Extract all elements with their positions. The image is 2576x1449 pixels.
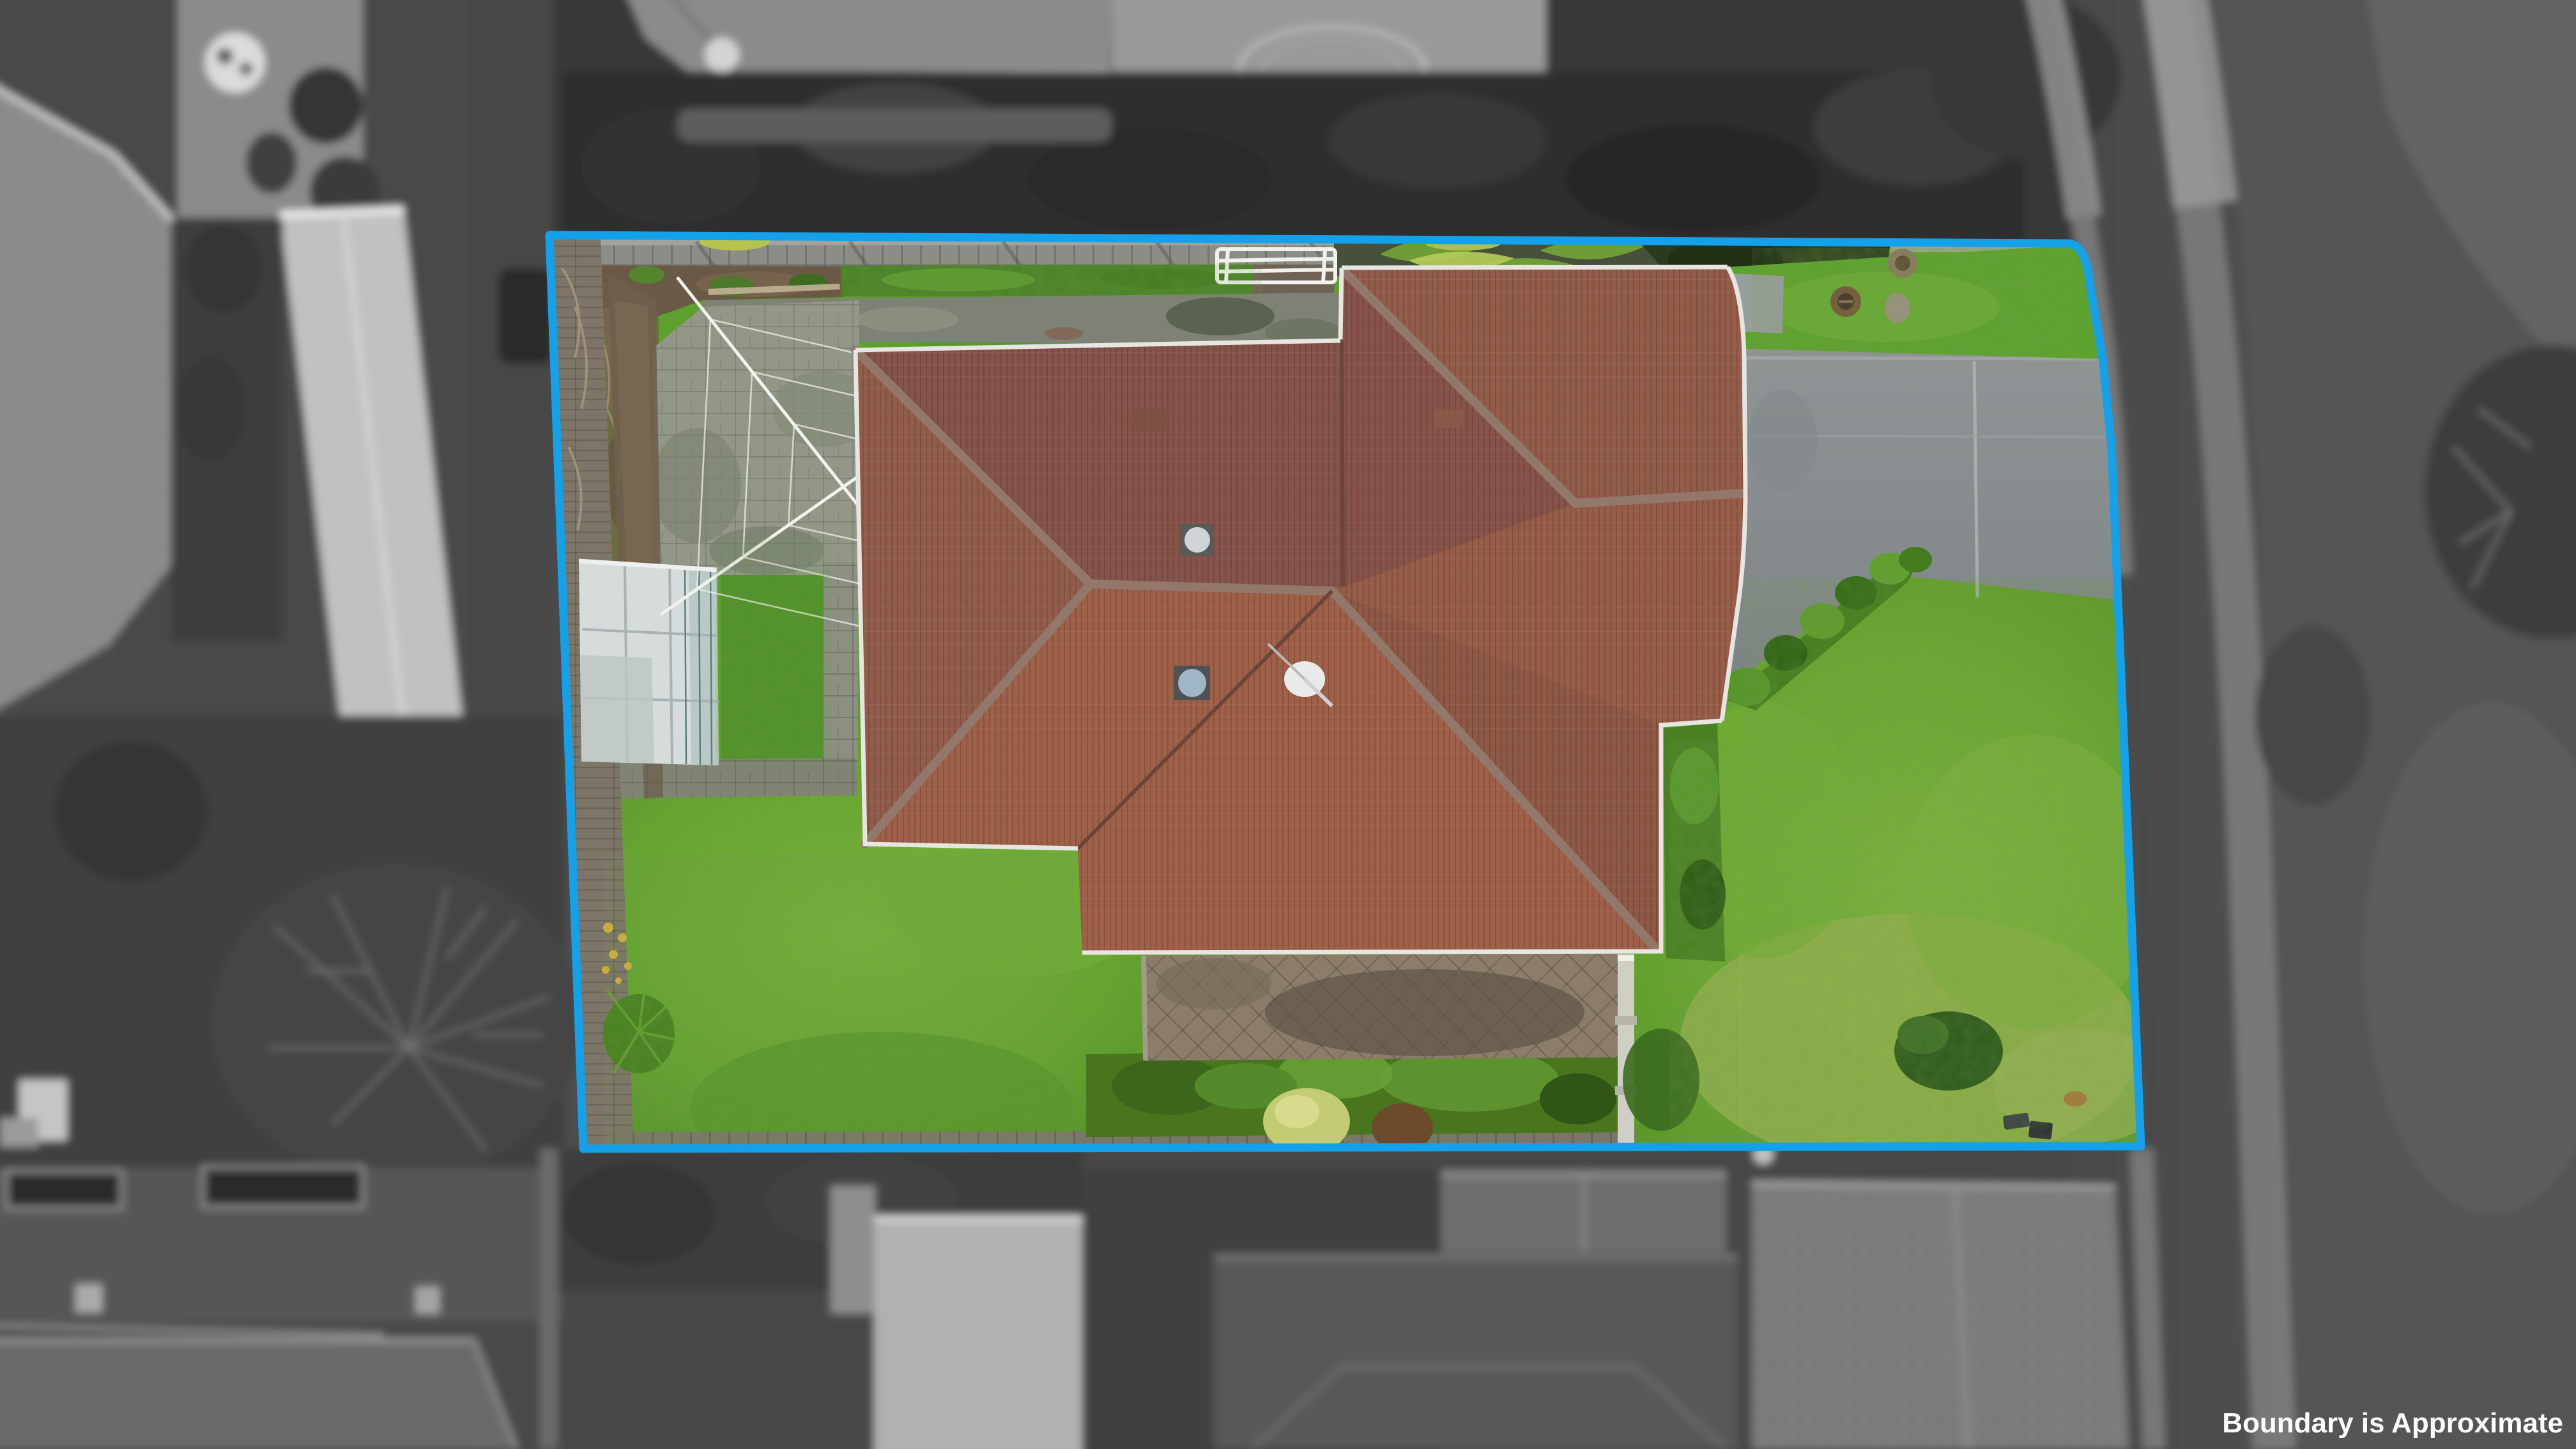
svg-text:Boundary is Approximate: Boundary is Approximate xyxy=(2222,1407,2563,1439)
